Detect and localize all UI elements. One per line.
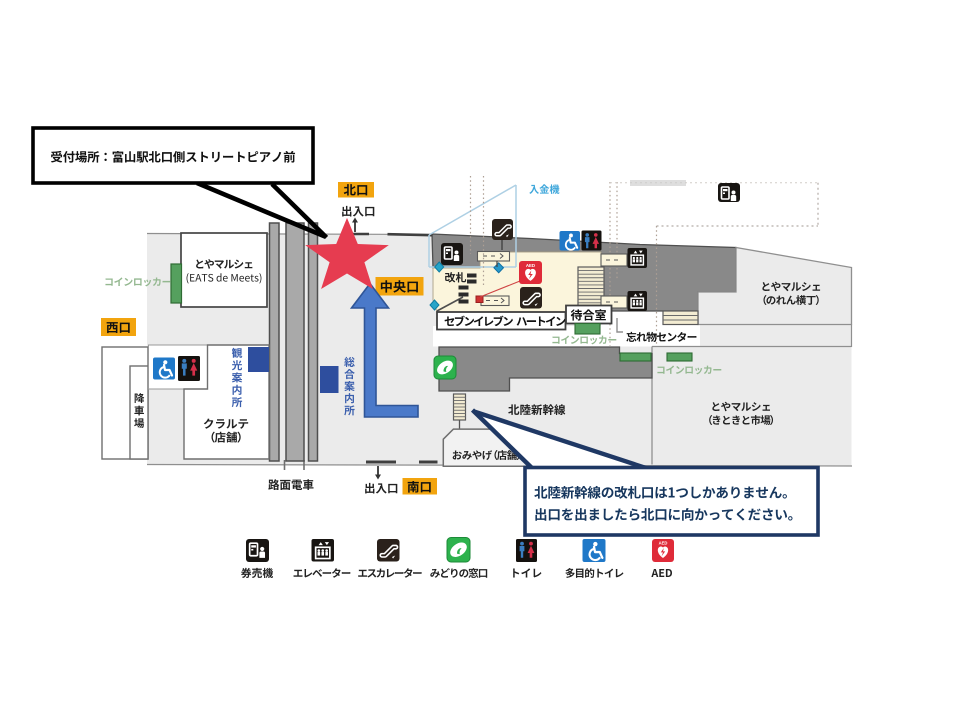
- svg-text:AED: AED: [659, 541, 668, 546]
- svg-text:AED: AED: [526, 263, 535, 268]
